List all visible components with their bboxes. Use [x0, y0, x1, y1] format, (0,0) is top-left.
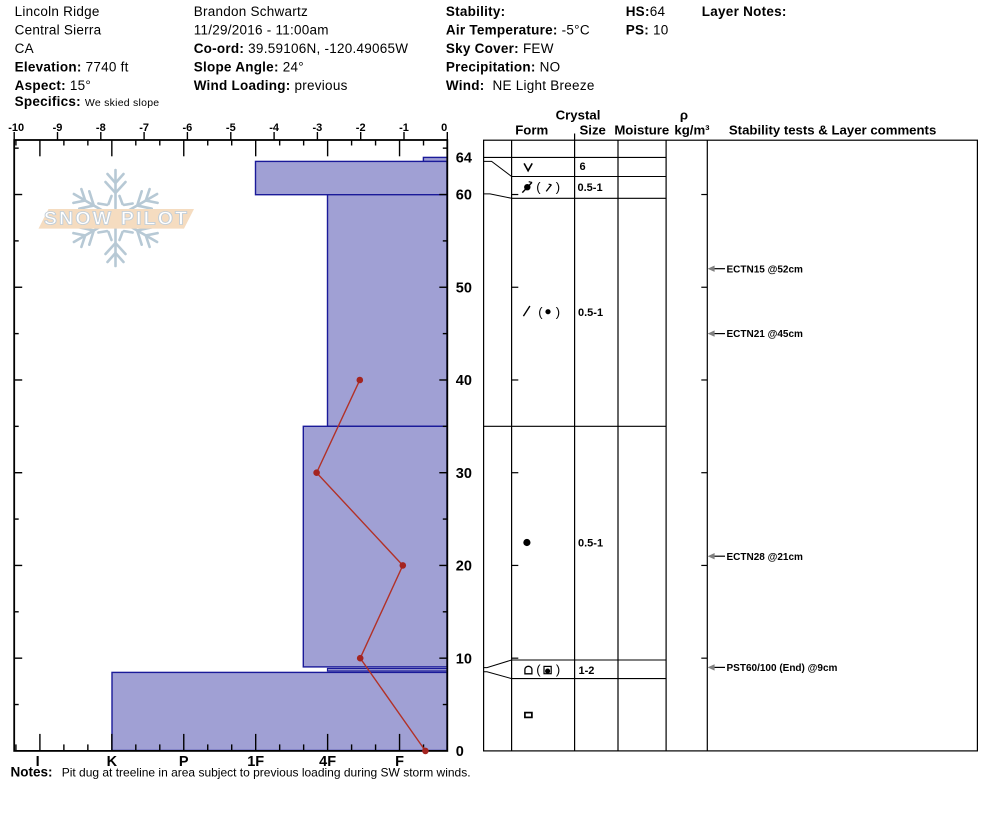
svg-text:Wind Loading: previous: Wind Loading: previous: [194, 78, 348, 93]
svg-text:50: 50: [456, 280, 472, 296]
svg-text:ECTN21 @45cm: ECTN21 @45cm: [727, 329, 804, 340]
svg-text:): ): [556, 304, 560, 319]
svg-text:11/29/2016 - 11:00am: 11/29/2016 - 11:00am: [194, 23, 329, 38]
svg-text:-2: -2: [356, 122, 366, 134]
svg-text:Size: Size: [580, 123, 606, 138]
svg-text:1-2: 1-2: [579, 665, 595, 677]
svg-text:-8: -8: [96, 122, 106, 134]
svg-text:-10: -10: [8, 122, 24, 134]
svg-text:Air Temperature: -5°C: Air Temperature: -5°C: [446, 23, 590, 38]
svg-text:kg/m³: kg/m³: [674, 123, 710, 138]
svg-text:0: 0: [456, 744, 464, 760]
svg-text:Precipitation: NO: Precipitation: NO: [446, 60, 561, 75]
svg-text:-4: -4: [269, 122, 280, 134]
svg-text:Brandon Schwartz: Brandon Schwartz: [194, 4, 308, 19]
svg-text:-3: -3: [313, 122, 323, 134]
svg-text:6: 6: [580, 161, 586, 173]
svg-text:PST60/100 (End) @9cm: PST60/100 (End) @9cm: [727, 663, 838, 674]
svg-text:(: (: [538, 304, 543, 319]
svg-text:40: 40: [456, 373, 472, 389]
svg-text:Elevation: 7740 ft: Elevation: 7740 ft: [15, 60, 129, 75]
svg-text:Sky Cover: FEW: Sky Cover: FEW: [446, 41, 554, 56]
svg-text:Specifics: We skied slope: Specifics: We skied slope: [15, 94, 160, 109]
svg-text:): ): [556, 180, 560, 195]
svg-text:SNOW PILOT: SNOW PILOT: [44, 209, 189, 229]
svg-text:Co-ord: 39.59106N, -120.49065W: Co-ord: 39.59106N, -120.49065W: [194, 41, 409, 56]
svg-text:Pit dug at treeline in area su: Pit dug at treeline in area subject to p…: [62, 765, 471, 779]
svg-text:0.5-1: 0.5-1: [578, 182, 603, 194]
svg-text:Layer Notes:: Layer Notes:: [702, 4, 787, 19]
svg-text:Lincoln Ridge: Lincoln Ridge: [15, 4, 100, 19]
svg-text:60: 60: [456, 188, 472, 204]
svg-text:Form: Form: [515, 123, 548, 138]
svg-text:-6: -6: [183, 122, 193, 134]
svg-text:0.5-1: 0.5-1: [578, 538, 603, 550]
svg-text:-1: -1: [399, 122, 409, 134]
svg-text:10: 10: [456, 651, 472, 667]
svg-text:ρ: ρ: [680, 108, 688, 123]
svg-text:HS:64: HS:64: [626, 4, 666, 19]
svg-text:Aspect: 15°: Aspect: 15°: [15, 78, 91, 93]
svg-text:Notes:: Notes:: [11, 764, 53, 779]
svg-text:20: 20: [456, 559, 472, 575]
svg-text:-5: -5: [226, 122, 236, 134]
svg-text:Slope Angle: 24°: Slope Angle: 24°: [194, 60, 304, 75]
svg-text:(: (: [536, 180, 541, 195]
svg-text:Moisture: Moisture: [614, 123, 669, 138]
svg-text:-7: -7: [139, 122, 149, 134]
svg-text:-9: -9: [53, 122, 63, 134]
svg-text:64: 64: [456, 151, 472, 167]
svg-text:CA: CA: [15, 41, 34, 56]
svg-text:Central Sierra: Central Sierra: [15, 23, 102, 38]
svg-text:30: 30: [456, 466, 472, 482]
svg-text:(: (: [536, 662, 541, 677]
svg-text:Stability:: Stability:: [446, 4, 506, 19]
svg-text:Crystal: Crystal: [556, 108, 601, 123]
svg-text:): ): [556, 662, 560, 677]
svg-text:ECTN28 @21cm: ECTN28 @21cm: [727, 552, 804, 563]
svg-text:0.5-1: 0.5-1: [578, 307, 603, 319]
svg-text:0: 0: [441, 122, 447, 134]
svg-text:Wind: NE Light Breeze: Wind: NE Light Breeze: [446, 78, 595, 93]
svg-text:Stability tests & Layer commen: Stability tests & Layer comments: [729, 123, 936, 138]
svg-text:PS: 10: PS: 10: [626, 23, 669, 38]
svg-text:ECTN15 @52cm: ECTN15 @52cm: [727, 264, 804, 275]
